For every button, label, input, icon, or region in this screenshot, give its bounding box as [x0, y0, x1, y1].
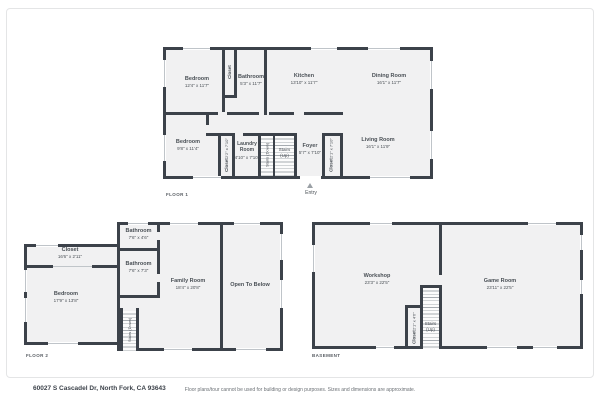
window	[311, 47, 337, 50]
wall	[92, 265, 117, 268]
window	[183, 47, 210, 50]
wall	[439, 222, 442, 275]
window	[193, 176, 221, 179]
floor1-plan: Bedroom 12'4" x 11'7" Closet Bathroom 5'…	[163, 47, 433, 207]
wall	[206, 112, 209, 125]
window	[430, 131, 433, 159]
wall	[157, 222, 160, 232]
wall	[117, 248, 160, 251]
wall	[136, 308, 139, 351]
wall	[157, 240, 160, 274]
room-closet-hall: Closet 2'2" x 7'10"	[221, 135, 232, 175]
room-closet-foyer: Closet 2'1" x 7'10"	[325, 135, 337, 175]
window	[170, 222, 198, 225]
room-laundry: Laundry Room 4'10" x 7'10"	[234, 142, 260, 160]
window	[48, 342, 78, 345]
room-living: Living Room 16'1" x 11'9"	[348, 137, 408, 149]
room-dining: Dining Room 16'1" x 11'7"	[359, 73, 419, 85]
window	[280, 280, 283, 308]
room-closet: Closet 16'6" x 2'11"	[30, 247, 110, 259]
wall	[227, 112, 259, 115]
room-closet-basement: Closet 2'1" x 4'6"	[408, 308, 420, 348]
window	[368, 47, 400, 50]
wall	[234, 47, 237, 95]
window	[163, 60, 166, 87]
stairs-up-label: Stairs (Up)	[274, 146, 295, 158]
basement-plan: Workshop 23'3" x 22'5" Game Room 23'11" …	[312, 222, 583, 352]
window	[280, 234, 283, 260]
window	[370, 176, 410, 179]
room-kitchen: Kitchen 13'10" x 11'7"	[274, 73, 334, 85]
wall	[269, 112, 294, 115]
room-workshop: Workshop 23'3" x 22'5"	[347, 273, 407, 285]
window	[580, 280, 583, 294]
window	[430, 61, 433, 89]
wall	[222, 95, 237, 98]
open-to-below-label: Open To Below	[220, 282, 280, 288]
footer-disclaimer: Floor plans/tour cannot be used for buil…	[0, 387, 600, 393]
floorplan-sheet: Bedroom 12'4" x 11'7" Closet Bathroom 5'…	[0, 0, 600, 400]
entry-door-opening	[300, 176, 321, 179]
room-bathroom-mid: Bathroom 7'6" x 7'3"	[120, 261, 157, 273]
stairs-down-label: Stairs (Down)	[261, 135, 273, 175]
stairs-up-treads	[423, 288, 439, 349]
basement-outline	[312, 222, 583, 349]
room-game: Game Room 23'11" x 22'5"	[470, 278, 530, 290]
window	[487, 346, 517, 349]
window	[24, 298, 27, 322]
window	[164, 348, 192, 351]
wall	[117, 295, 160, 298]
room-bedroom-2: Bedroom 9'8" x 11'4"	[163, 139, 213, 151]
window	[376, 346, 394, 349]
stairs-down-label: Stairs (Down)	[123, 310, 136, 350]
window	[312, 245, 315, 272]
window	[236, 348, 266, 351]
room-bedroom-1: Bedroom 12'4" x 11'7"	[169, 76, 225, 88]
room-bathroom-top: Bathroom 7'6" x 4'6"	[120, 228, 157, 240]
wall	[439, 288, 442, 349]
window	[128, 222, 148, 225]
window	[24, 270, 27, 292]
room-closet-top: Closet	[225, 51, 234, 93]
wall	[304, 112, 343, 115]
floor2-tag: FLOOR 2	[26, 353, 48, 358]
window	[580, 235, 583, 250]
stairs-up-label: Stairs (Up)	[420, 320, 441, 332]
room-foyer: Foyer 5'7" x 7'10"	[295, 143, 325, 155]
wall	[340, 133, 343, 176]
room-bathroom: Bathroom 5'3" x 11'7"	[237, 74, 265, 86]
window	[528, 222, 556, 225]
entry-label: Entry	[295, 190, 327, 196]
window	[370, 222, 392, 225]
room-bedroom: Bedroom 17'9" x 13'8"	[36, 291, 96, 303]
window	[533, 346, 557, 349]
basement-tag: BASEMENT	[312, 353, 340, 358]
closet-door-track	[53, 266, 92, 267]
wall	[27, 265, 53, 268]
floor1-tag: FLOOR 1	[166, 192, 188, 197]
entry-arrow-icon	[307, 183, 313, 188]
window	[234, 222, 260, 225]
room-family: Family Room 18'4" x 20'8"	[158, 278, 218, 290]
wall	[163, 112, 218, 115]
floor2-plan: Closet 16'6" x 2'11" Bathroom 7'6" x 4'6…	[24, 222, 284, 355]
